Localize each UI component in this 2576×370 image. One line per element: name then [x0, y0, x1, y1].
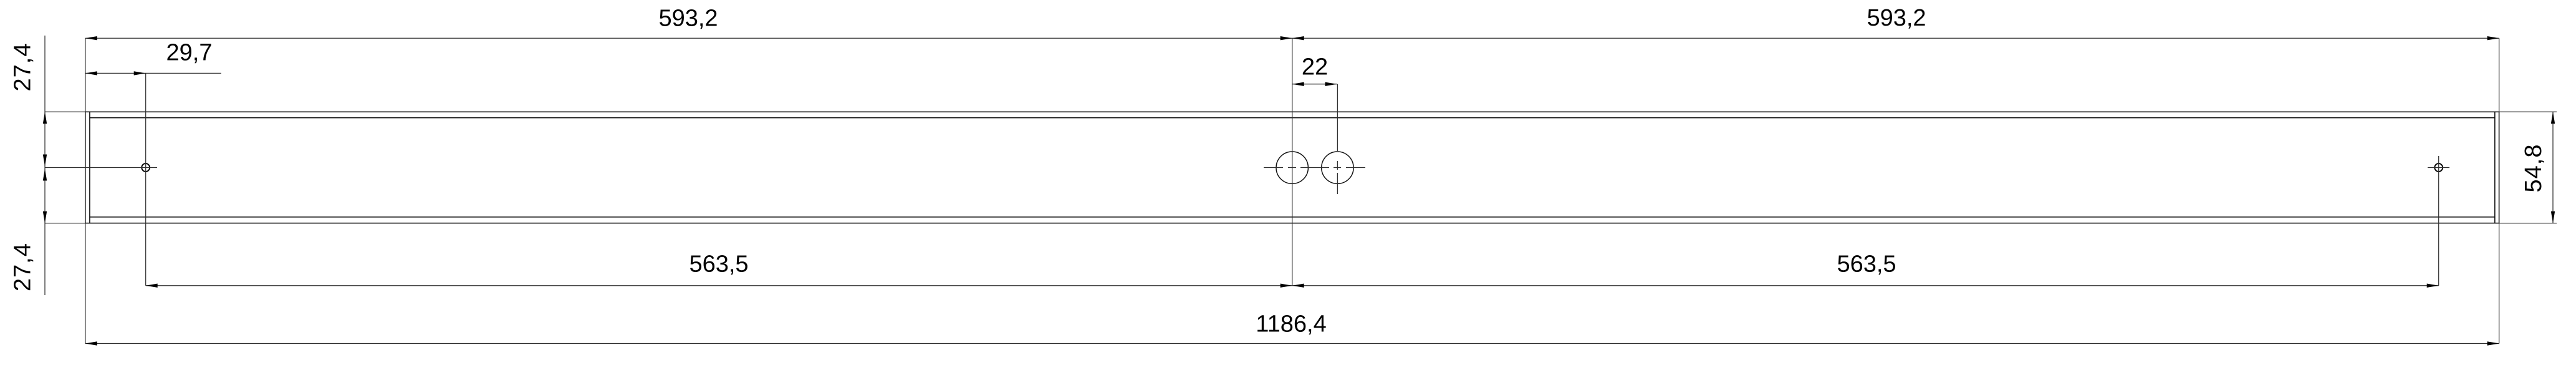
svg-text:563,5: 563,5	[1837, 251, 1896, 278]
svg-text:563,5: 563,5	[689, 251, 748, 278]
svg-text:22: 22	[1302, 54, 1328, 80]
svg-text:27,4: 27,4	[9, 43, 36, 92]
svg-text:54,8: 54,8	[2521, 144, 2547, 193]
svg-text:27,4: 27,4	[9, 243, 36, 291]
svg-text:593,2: 593,2	[1867, 5, 1926, 31]
svg-text:1186,4: 1186,4	[1256, 311, 1326, 338]
svg-text:593,2: 593,2	[658, 6, 718, 32]
svg-text:29,7: 29,7	[166, 40, 213, 66]
